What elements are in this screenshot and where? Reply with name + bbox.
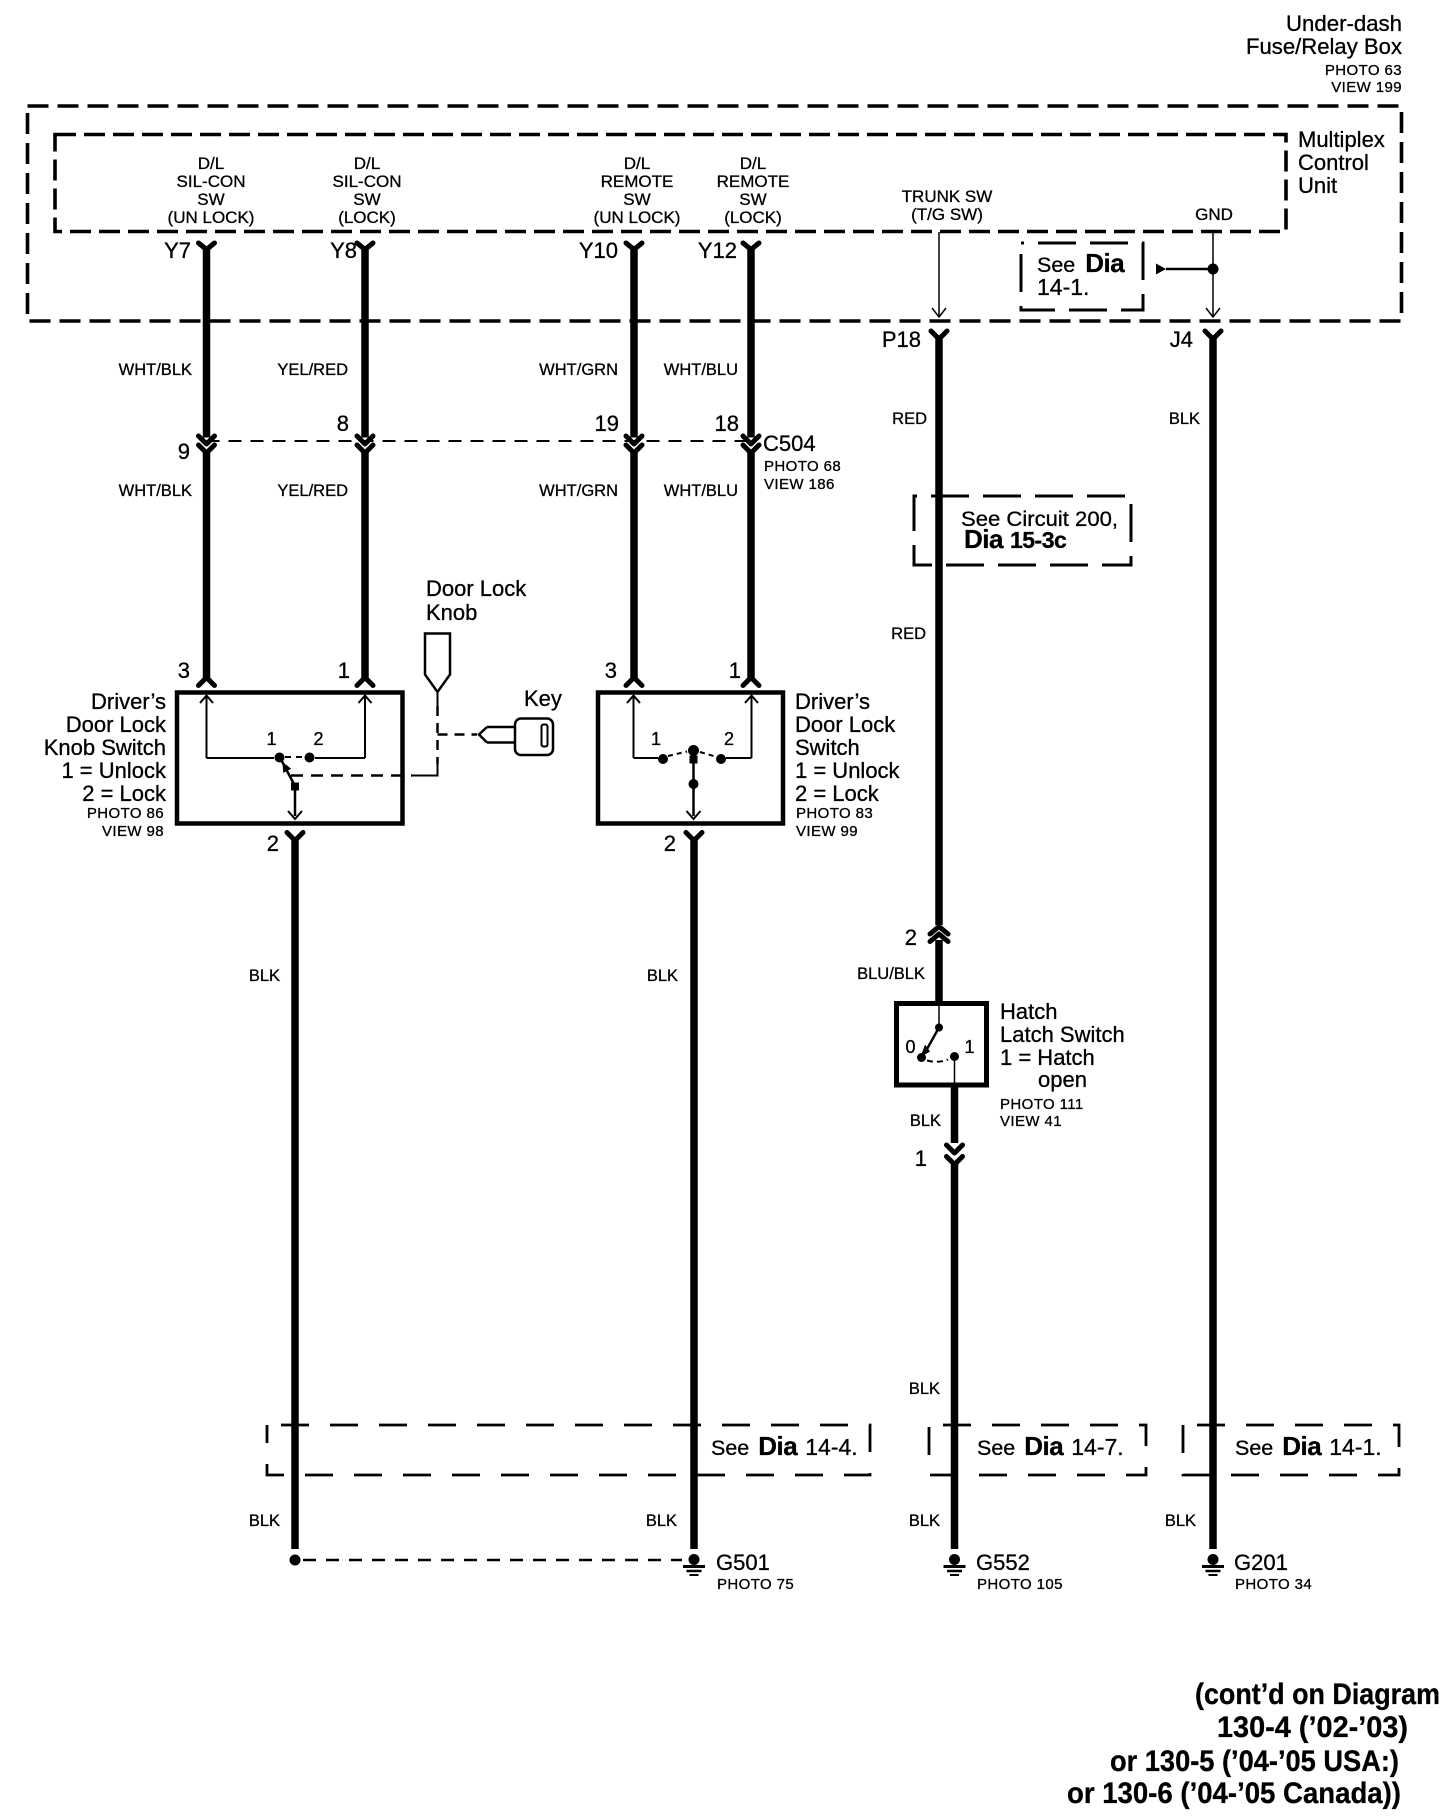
svg-text:2 = Lock: 2 = Lock (82, 781, 167, 806)
svg-text:Key: Key (524, 686, 562, 711)
svg-text:3: 3 (605, 658, 617, 683)
svg-text:SIL-CON: SIL-CON (177, 172, 246, 191)
svg-text:Multiplex: Multiplex (1298, 127, 1385, 152)
svg-text:J4: J4 (1170, 327, 1193, 352)
svg-text:BLK: BLK (249, 967, 280, 985)
svg-text:WHT/BLU: WHT/BLU (664, 361, 738, 379)
svg-text:GND: GND (1195, 205, 1233, 224)
svg-text:1 = Unlock: 1 = Unlock (61, 758, 167, 783)
svg-text:Door Lock: Door Lock (426, 576, 527, 601)
svg-text:WHT/GRN: WHT/GRN (539, 361, 618, 379)
svg-text:1: 1 (915, 1146, 927, 1171)
svg-text:D/L: D/L (354, 154, 380, 173)
svg-text:9: 9 (178, 439, 190, 464)
svg-text:Latch Switch: Latch Switch (1000, 1022, 1125, 1047)
svg-text:REMOTE: REMOTE (601, 172, 674, 191)
svg-text:PHOTO 105: PHOTO 105 (977, 1576, 1063, 1593)
svg-text:SW: SW (197, 190, 224, 209)
svg-text:(UN LOCK): (UN LOCK) (594, 208, 681, 227)
svg-text:Knob: Knob (426, 600, 477, 625)
svg-text:Dia15-3c: Dia15-3c (964, 524, 1067, 554)
svg-text:or 130-5 (’04-’05 USA:): or 130-5 (’04-’05 USA:) (1110, 1745, 1399, 1778)
svg-text:Knob Switch: Knob Switch (44, 735, 166, 760)
svg-text:C504: C504 (763, 431, 816, 456)
svg-text:PHOTO 111: PHOTO 111 (1000, 1096, 1084, 1113)
svg-text:RED: RED (891, 625, 926, 643)
svg-text:WHT/GRN: WHT/GRN (539, 482, 618, 500)
svg-text:BLK: BLK (1169, 410, 1200, 428)
svg-text:1: 1 (729, 658, 741, 683)
svg-text:Driver’s: Driver’s (795, 689, 870, 714)
svg-text:VIEW 186: VIEW 186 (764, 476, 835, 493)
svg-text:or 130-6 (’04-’05 Canada)): or 130-6 (’04-’05 Canada)) (1067, 1777, 1401, 1810)
svg-text:Driver’s: Driver’s (91, 689, 166, 714)
svg-text:SeeDia14-1.: SeeDia14-1. (1235, 1431, 1382, 1461)
svg-text:2: 2 (905, 925, 917, 950)
svg-text:SeeDia14-4.: SeeDia14-4. (711, 1431, 858, 1461)
svg-text:VIEW 199: VIEW 199 (1331, 79, 1402, 96)
svg-text:1: 1 (651, 729, 661, 749)
svg-text:YEL/RED: YEL/RED (277, 361, 348, 379)
svg-text:SIL-CON: SIL-CON (333, 172, 402, 191)
svg-text:BLK: BLK (909, 1380, 940, 1398)
svg-text:1: 1 (266, 729, 276, 749)
svg-text:1: 1 (338, 658, 350, 683)
svg-text:D/L: D/L (624, 154, 650, 173)
svg-text:8: 8 (337, 411, 349, 436)
svg-text:(T/G SW): (T/G SW) (911, 205, 983, 224)
svg-text:Door Lock: Door Lock (795, 712, 896, 737)
svg-text:(LOCK): (LOCK) (724, 208, 782, 227)
svg-text:D/L: D/L (740, 154, 766, 173)
svg-text:BLK: BLK (647, 967, 678, 985)
svg-text:VIEW 99: VIEW 99 (796, 823, 858, 840)
svg-text:3: 3 (178, 658, 190, 683)
svg-text:BLK: BLK (646, 1512, 677, 1530)
svg-text:Y12: Y12 (698, 238, 737, 263)
svg-text:Fuse/Relay Box: Fuse/Relay Box (1246, 34, 1402, 59)
svg-text:(LOCK): (LOCK) (338, 208, 396, 227)
svg-text:G501: G501 (716, 1550, 770, 1575)
svg-text:SW: SW (623, 190, 650, 209)
svg-text:2: 2 (664, 831, 676, 856)
svg-text:Control: Control (1298, 150, 1369, 175)
svg-text:Hatch: Hatch (1000, 999, 1057, 1024)
svg-text:130-4 (’02-’03): 130-4 (’02-’03) (1217, 1711, 1408, 1744)
svg-text:G201: G201 (1234, 1550, 1288, 1575)
svg-text:PHOTO 63: PHOTO 63 (1325, 62, 1402, 79)
svg-text:BLK: BLK (909, 1512, 940, 1530)
svg-text:(UN LOCK): (UN LOCK) (168, 208, 255, 227)
svg-text:WHT/BLK: WHT/BLK (119, 361, 192, 379)
svg-text:18: 18 (715, 411, 739, 436)
svg-text:14-1.: 14-1. (1037, 274, 1089, 300)
svg-text:BLK: BLK (249, 1512, 280, 1530)
svg-text:SW: SW (739, 190, 766, 209)
svg-text:2: 2 (724, 729, 734, 749)
svg-text:Door Lock: Door Lock (66, 712, 167, 737)
svg-text:SW: SW (353, 190, 380, 209)
svg-text:19: 19 (595, 411, 619, 436)
svg-text:Y10: Y10 (579, 238, 618, 263)
svg-text:TRUNK SW: TRUNK SW (902, 187, 993, 206)
svg-text:YEL/RED: YEL/RED (277, 482, 348, 500)
svg-text:SeeDia14-7.: SeeDia14-7. (977, 1431, 1124, 1461)
svg-text:RED: RED (892, 410, 927, 428)
svg-text:BLU/BLK: BLU/BLK (857, 965, 925, 983)
svg-text:REMOTE: REMOTE (717, 172, 790, 191)
svg-text:PHOTO 34: PHOTO 34 (1235, 1576, 1312, 1593)
svg-text:1: 1 (964, 1037, 974, 1057)
svg-text:WHT/BLU: WHT/BLU (664, 482, 738, 500)
svg-text:P18: P18 (882, 327, 921, 352)
svg-text:VIEW 41: VIEW 41 (1000, 1113, 1062, 1130)
svg-text:Unit: Unit (1298, 173, 1337, 198)
svg-text:PHOTO 83: PHOTO 83 (796, 805, 873, 822)
svg-text:2: 2 (267, 831, 279, 856)
svg-text:BLK: BLK (910, 1112, 941, 1130)
svg-text:Y7: Y7 (164, 238, 191, 263)
svg-text:2: 2 (313, 729, 323, 749)
svg-text:1 = Unlock: 1 = Unlock (795, 758, 901, 783)
svg-text:(cont’d on Diagram: (cont’d on Diagram (1195, 1678, 1440, 1711)
svg-text:Under-dash: Under-dash (1286, 11, 1402, 36)
svg-text:Switch: Switch (795, 735, 860, 760)
svg-text:0: 0 (905, 1037, 915, 1057)
svg-text:open: open (1038, 1067, 1087, 1092)
svg-text:PHOTO 86: PHOTO 86 (87, 805, 164, 822)
svg-text:PHOTO 75: PHOTO 75 (717, 1576, 794, 1593)
svg-text:Y8: Y8 (330, 238, 357, 263)
svg-text:G552: G552 (976, 1550, 1030, 1575)
svg-text:2 = Lock: 2 = Lock (795, 781, 880, 806)
svg-text:WHT/BLK: WHT/BLK (119, 482, 192, 500)
svg-text:PHOTO 68: PHOTO 68 (764, 458, 841, 475)
svg-text:VIEW 98: VIEW 98 (102, 823, 164, 840)
svg-text:BLK: BLK (1165, 1512, 1196, 1530)
svg-text:D/L: D/L (198, 154, 224, 173)
